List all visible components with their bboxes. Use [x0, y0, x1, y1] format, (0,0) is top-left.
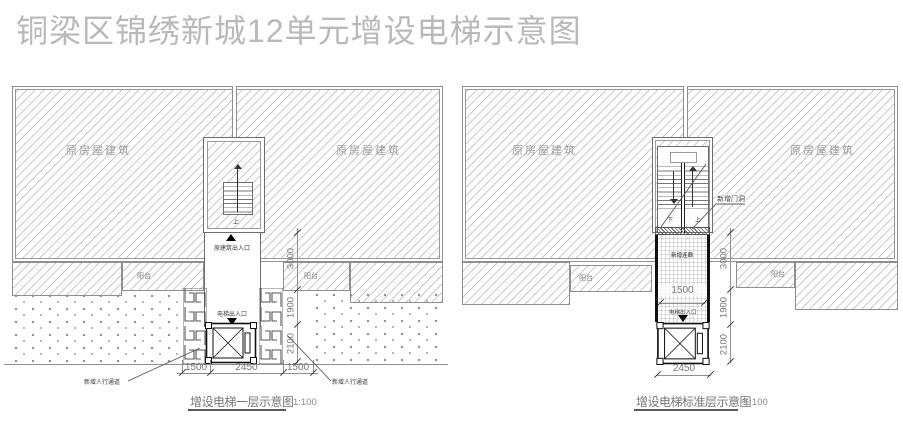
balcony-label: 阳台 [137, 271, 151, 281]
original-entrance-label: 原建筑出入口 [214, 243, 250, 252]
page-title: 铜梁区锦绣新城12单元增设电梯示意图 [16, 6, 582, 52]
walkway-label-left: 新增人行通道 [84, 377, 120, 386]
stair-area: 下 上 [657, 146, 709, 233]
entrance-arrow-icon [226, 234, 236, 241]
dim-2450-2: 2450 [664, 363, 704, 374]
dim-tick [707, 371, 714, 378]
left-title-underline [188, 409, 286, 411]
balcony-label: 阳台 [304, 271, 318, 281]
stair-flight [223, 182, 253, 215]
building-label-right-2: 原房屋建筑 [790, 142, 855, 158]
existing-building-lower-left [12, 262, 122, 296]
elevator-car-2 [656, 322, 710, 365]
right-title-underline [634, 409, 738, 411]
dim-1500-left: 1500 [182, 362, 210, 373]
new-corridor-label: 新增连廊 [671, 251, 693, 259]
existing-building-lower-left-2 [462, 262, 570, 305]
walkway-meander-left [183, 288, 207, 364]
walkway-meander-right [259, 288, 283, 364]
balcony-label: 阳台 [579, 273, 593, 283]
vdim-line-2 [730, 228, 731, 363]
left-diagram-scale: 1:100 [293, 397, 317, 408]
walkway-label-right: 新增人行通道 [332, 377, 368, 386]
existing-building-lower-right [350, 262, 443, 303]
elevator-car [205, 322, 257, 364]
building-label-left: 原房屋建筑 [66, 142, 131, 158]
balcony-left-2: 阳台 [570, 265, 652, 292]
stair-direction-line [237, 168, 238, 212]
balcony-left: 阳台 [122, 262, 204, 291]
stair-down-line [673, 171, 674, 201]
wall-axis-line-2 [683, 86, 688, 138]
wall-axis-line [232, 86, 237, 138]
stair-down-arrow-icon [670, 199, 678, 204]
balcony-label: 阳台 [771, 269, 785, 279]
left-diagram-title: 增设电梯一层示意图 [190, 393, 294, 410]
existing-building-lower-right-2 [795, 262, 898, 310]
dim-3000-2: 3000 [719, 241, 730, 277]
hdim-line-2 [657, 375, 711, 376]
elevator-entrance-label: 电梯出入口 [217, 309, 247, 318]
building-label-right: 原房屋建筑 [336, 142, 401, 158]
dim-1900: 1900 [286, 290, 297, 326]
dim-2100-2: 2100 [719, 327, 730, 363]
right-diagram-scale: 1:100 [744, 397, 768, 408]
dim-2450: 2450 [210, 362, 283, 373]
stair-down-label: 下 [667, 215, 673, 224]
stair-arrow-icon [234, 164, 242, 169]
dim-1900-2: 1900 [719, 290, 730, 326]
right-diagram-title: 增设电梯标准层示意图 [636, 393, 751, 410]
vdim-line [297, 228, 298, 363]
hdim-line [177, 373, 318, 374]
stair-up-label: 上 [695, 215, 701, 224]
elevator-entrance-arrow-icon-2 [678, 315, 688, 322]
new-door-opening-label: 新增门洞 [716, 194, 746, 204]
corridor-width-dim: 1500 [658, 285, 707, 296]
stair-divider-wall [681, 163, 685, 233]
dim-2100: 2100 [286, 326, 297, 362]
ground-texture-left [12, 292, 183, 364]
new-door-opening [655, 227, 710, 235]
stair-landing [670, 152, 697, 163]
stairwell: 上 [203, 137, 265, 233]
dim-1500-right: 1500 [283, 362, 313, 373]
drawing-canvas: 铜梁区锦绣新城12单元增设电梯示意图 阳台 阳台 原房屋建筑 原房屋建筑 上 原… [0, 0, 903, 424]
stair-up-label: 上 [233, 217, 239, 226]
stairwell-2: 下 上 [652, 137, 713, 233]
corridor-dim-line [660, 303, 705, 304]
dim-3000: 3000 [286, 241, 297, 277]
balcony-right-2: 阳台 [736, 262, 795, 288]
new-corridor: 新增连廊 1500 电梯出入口 [655, 235, 710, 322]
stair-up-line [692, 169, 693, 207]
building-label-left-2: 原房屋建筑 [512, 142, 577, 158]
stair-up-arrow-icon [689, 166, 697, 171]
